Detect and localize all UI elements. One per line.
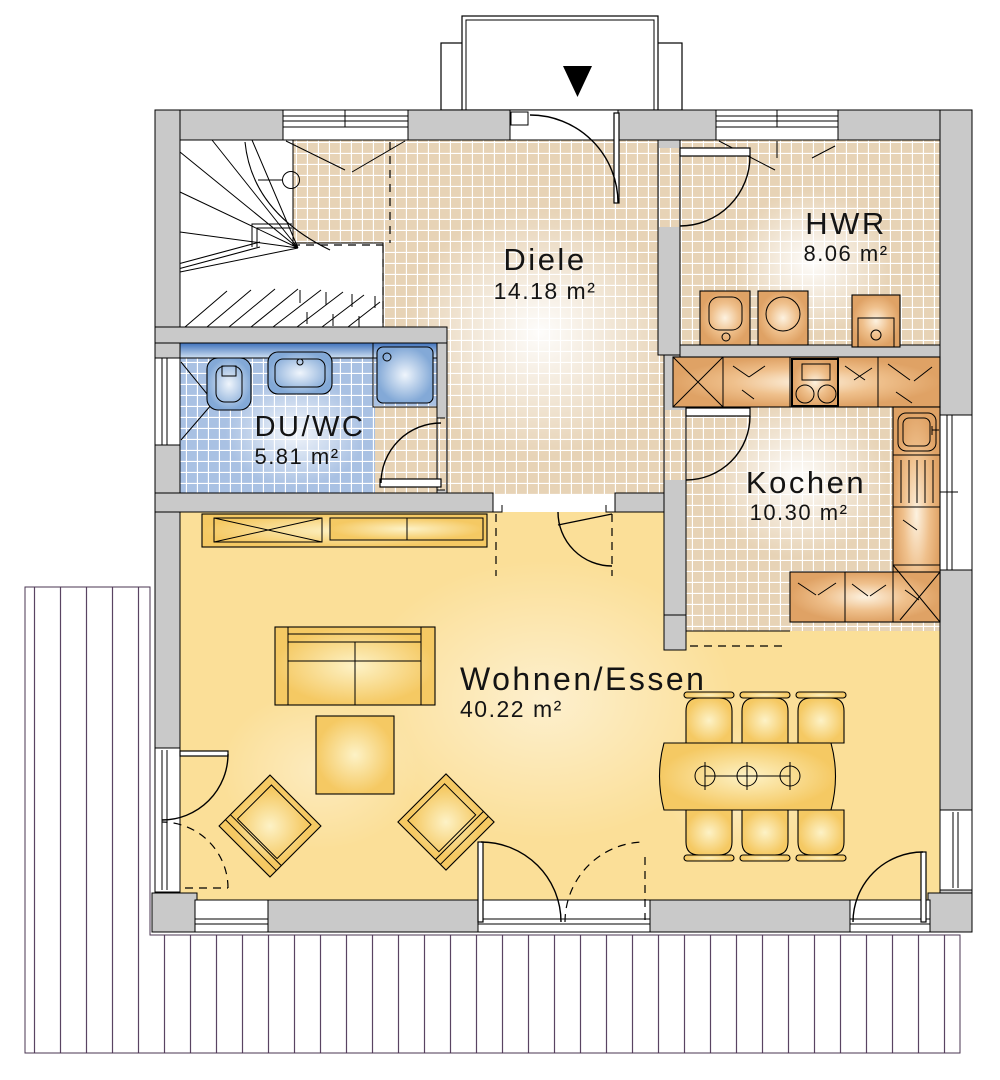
dining-chairs-top bbox=[684, 692, 846, 743]
stove-cooktop bbox=[792, 359, 838, 406]
sideboard bbox=[202, 514, 487, 547]
window-wohnen-bottom bbox=[195, 900, 268, 932]
label-diele-area: 14.18 m² bbox=[494, 278, 597, 304]
dining-table bbox=[660, 743, 836, 810]
floorplan-page: Diele 14.18 m² HWR 8.06 m² DU/WC 5.81 m²… bbox=[0, 0, 1000, 1080]
dining-chairs-bottom bbox=[684, 810, 846, 861]
label-hwr-area: 8.06 m² bbox=[803, 241, 888, 266]
entrance-canopy bbox=[441, 16, 682, 110]
window-wohnen-right bbox=[940, 810, 972, 890]
label-kochen-area: 10.30 m² bbox=[750, 500, 849, 525]
floorplan-drawing: Diele 14.18 m² HWR 8.06 m² DU/WC 5.81 m²… bbox=[0, 0, 1000, 1080]
label-duwc-name: DU/WC bbox=[255, 411, 366, 443]
label-duwc-area: 5.81 m² bbox=[254, 444, 339, 469]
label-wohnen-area: 40.22 m² bbox=[460, 696, 563, 722]
dryer bbox=[758, 291, 808, 345]
label-diele-name: Diele bbox=[503, 242, 586, 277]
kitchen-counter-bottom bbox=[790, 565, 940, 622]
shower bbox=[373, 343, 437, 407]
toilet bbox=[207, 358, 251, 410]
washbasin bbox=[268, 352, 332, 394]
washing-machine bbox=[700, 291, 750, 345]
coffee-table bbox=[316, 716, 394, 794]
sofa bbox=[275, 627, 435, 705]
label-kochen-name: Kochen bbox=[746, 465, 866, 500]
utility-sink-unit bbox=[852, 295, 900, 347]
label-wohnen-name: Wohnen/Essen bbox=[460, 661, 706, 697]
label-hwr-name: HWR bbox=[805, 206, 887, 241]
